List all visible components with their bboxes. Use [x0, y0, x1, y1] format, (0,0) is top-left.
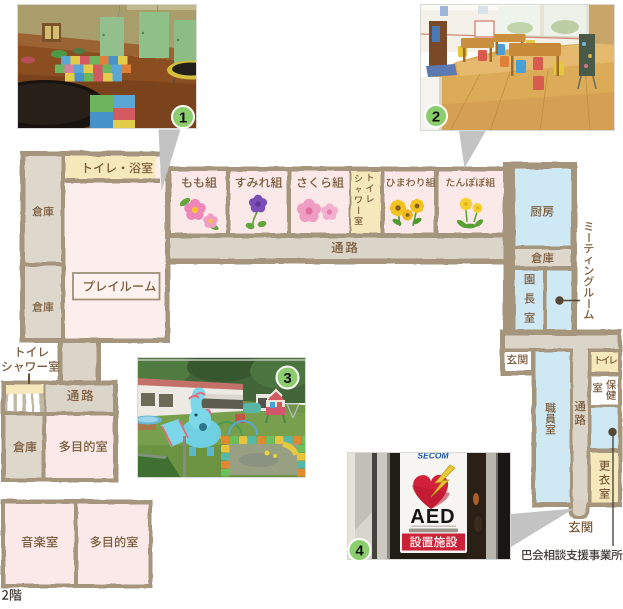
- svg-text:3: 3: [283, 370, 291, 387]
- svg-text:1: 1: [179, 109, 187, 126]
- svg-text:2: 2: [432, 108, 440, 125]
- svg-text:AED: AED: [410, 506, 455, 528]
- svg-text:4: 4: [355, 542, 364, 559]
